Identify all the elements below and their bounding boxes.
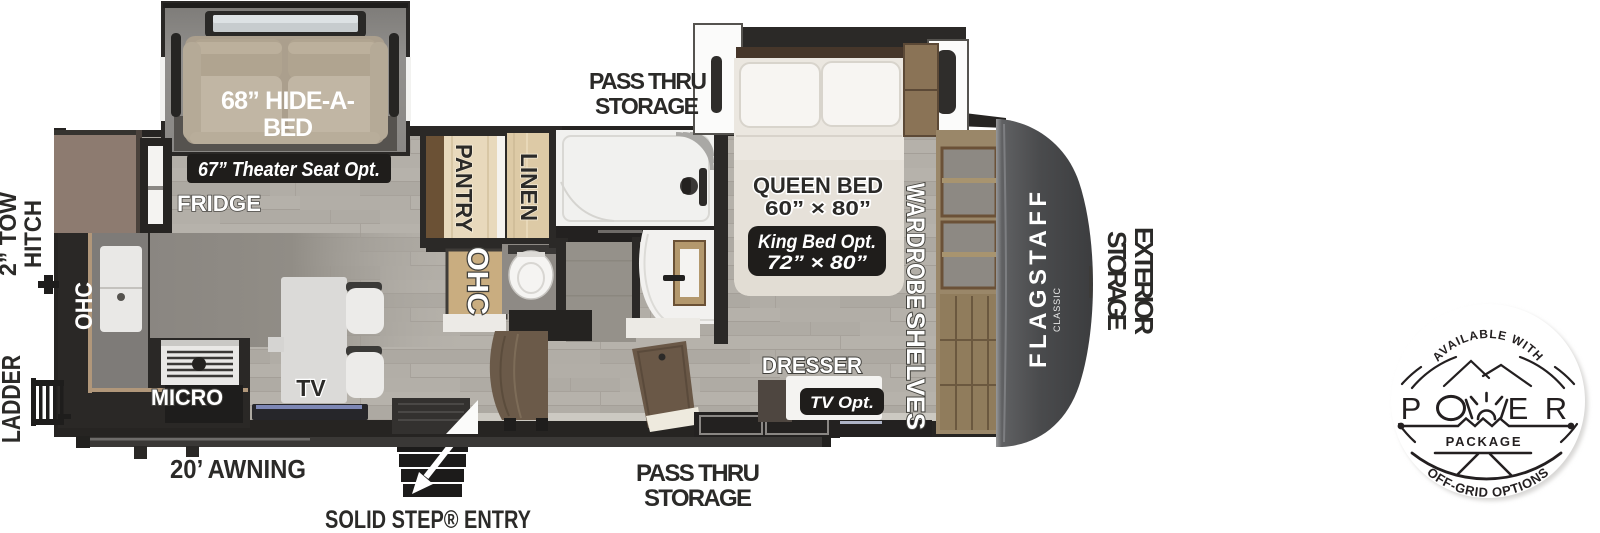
svg-text:King Bed Opt.: King Bed Opt.	[758, 232, 876, 253]
svg-text:TV: TV	[296, 375, 326, 401]
svg-text:OHC: OHC	[71, 282, 98, 330]
svg-text:PACKAGE: PACKAGE	[1446, 434, 1523, 449]
svg-text:SHELVES: SHELVES	[901, 312, 929, 430]
svg-text:P: P	[1401, 391, 1422, 426]
svg-text:STORAGE: STORAGE	[1102, 231, 1132, 331]
svg-text:OHC: OHC	[461, 247, 493, 315]
svg-text:R: R	[1545, 391, 1567, 426]
svg-text:QUEEN BED: QUEEN BED	[753, 173, 883, 198]
svg-text:PASS THRU: PASS THRU	[589, 68, 707, 94]
svg-text:20’ AWNING: 20’ AWNING	[170, 454, 306, 484]
svg-text:DRESSER: DRESSER	[762, 353, 862, 378]
svg-text:PASS THRU: PASS THRU	[636, 460, 760, 487]
svg-text:2” TOW: 2” TOW	[0, 192, 22, 276]
svg-text:60” × 80”: 60” × 80”	[765, 198, 871, 220]
svg-text:LADDER: LADDER	[0, 355, 26, 443]
svg-text:STORAGE: STORAGE	[595, 93, 699, 119]
svg-text:68” HIDE-A-: 68” HIDE-A-	[221, 87, 355, 115]
svg-text:MICRO: MICRO	[151, 385, 223, 410]
svg-text:E: E	[1508, 391, 1529, 426]
svg-text:FLAGSTAFF: FLAGSTAFF	[1025, 192, 1052, 368]
svg-text:EXTERIOR: EXTERIOR	[1129, 227, 1159, 335]
svg-text:WARDROBE: WARDROBE	[901, 183, 929, 309]
svg-text:72” × 80”: 72” × 80”	[767, 253, 868, 274]
svg-text:BED: BED	[263, 114, 313, 142]
svg-text:LINEN: LINEN	[516, 153, 542, 221]
svg-text:CLASSIC: CLASSIC	[1052, 288, 1062, 333]
svg-text:SOLID STEP® ENTRY: SOLID STEP® ENTRY	[325, 506, 531, 533]
svg-text:STORAGE: STORAGE	[644, 485, 752, 512]
svg-text:TV Opt.: TV Opt.	[810, 393, 874, 412]
svg-text:FRIDGE: FRIDGE	[177, 191, 261, 216]
svg-text:PANTRY: PANTRY	[451, 144, 477, 232]
svg-text:HITCH: HITCH	[20, 200, 47, 268]
svg-text:67” Theater Seat Opt.: 67” Theater Seat Opt.	[198, 159, 380, 181]
